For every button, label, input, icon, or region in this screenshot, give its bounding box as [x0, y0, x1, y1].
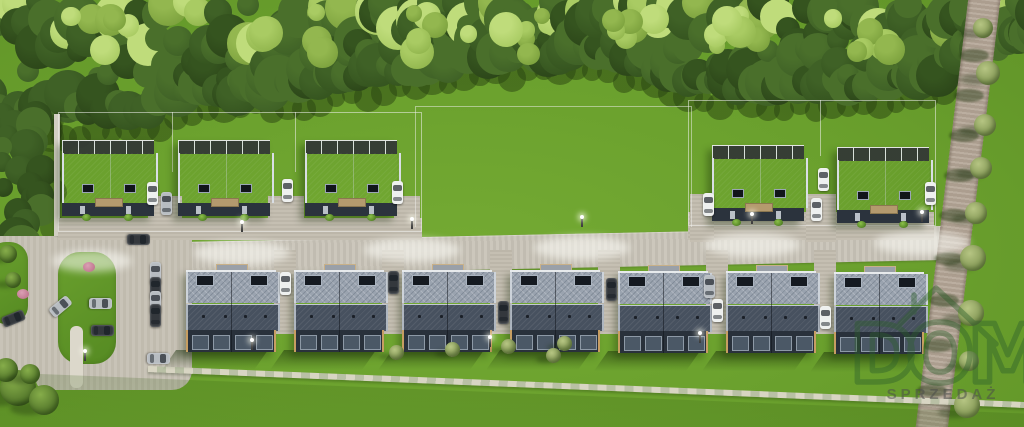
street-lamp-pole [751, 215, 753, 224]
street-lamp-head [488, 335, 492, 339]
street-lamp-head [410, 217, 414, 221]
lamps-layer [0, 0, 1024, 427]
street-lamp-head [920, 210, 924, 214]
street-lamp-head [750, 212, 754, 216]
street-lamp-head [250, 338, 254, 342]
street-lamp-pole [411, 220, 413, 229]
street-lamp-head [83, 349, 87, 353]
street-lamp-head [580, 215, 584, 219]
street-lamp-pole [489, 338, 491, 347]
street-lamp-pole [581, 218, 583, 227]
street-lamp-head [698, 331, 702, 335]
street-lamp-pole [251, 341, 253, 350]
street-lamp-pole [699, 334, 701, 343]
aerial-estate-render: D O M SPRZEDAŻ [0, 0, 1024, 427]
street-lamp-pole [84, 352, 86, 361]
street-lamp-head [240, 220, 244, 224]
street-lamp-pole [921, 213, 923, 222]
street-lamp-pole [241, 223, 243, 232]
